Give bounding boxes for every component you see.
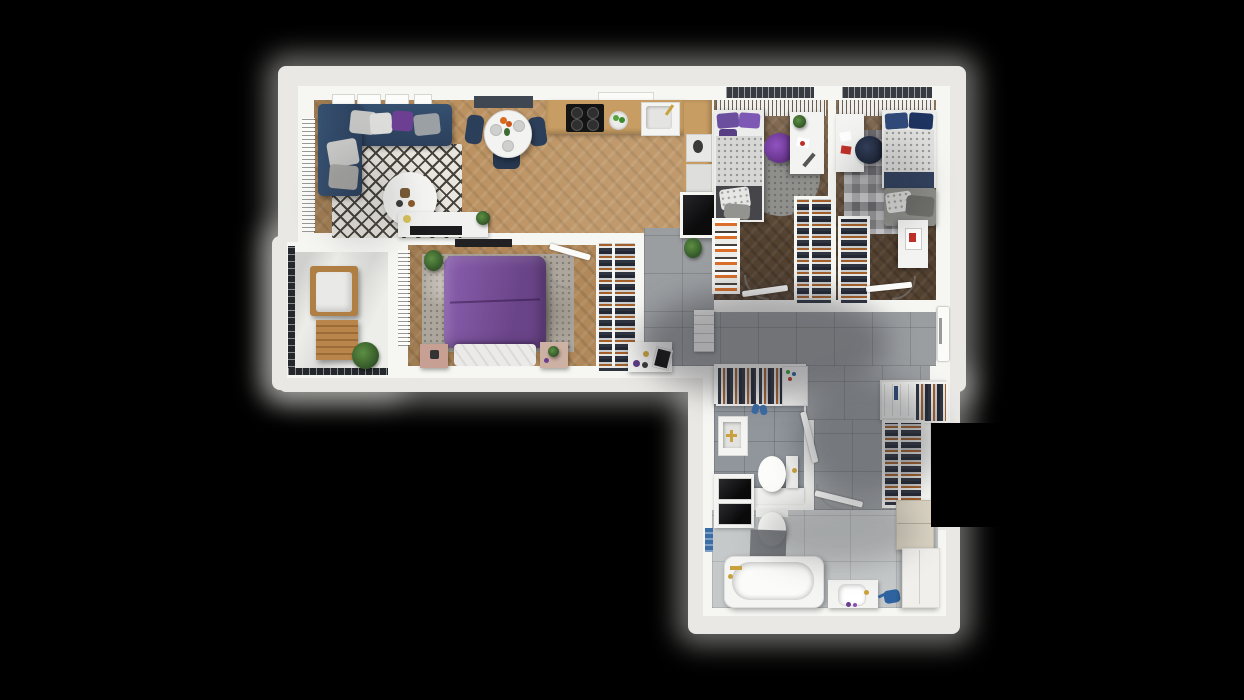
kid2-pouf	[855, 136, 884, 164]
exterior-notch	[931, 423, 1051, 527]
vanity-basin	[838, 584, 866, 606]
closet-shelf-lines	[884, 384, 912, 416]
cabinet-decor	[792, 372, 796, 376]
wc-flush-button	[792, 468, 797, 473]
hall-plant	[684, 238, 702, 258]
kid1-wardrobe	[794, 196, 834, 306]
master-duvet-white	[454, 344, 536, 366]
nightstand-decor	[430, 350, 439, 359]
bathtub-basin	[732, 562, 814, 600]
washer-door	[718, 478, 752, 500]
entry-door-handle	[939, 318, 942, 344]
cabinet-decor	[788, 377, 792, 381]
coat-rack-clothes	[716, 366, 758, 406]
balcony-glass-left	[288, 246, 295, 374]
living-window-blinds	[302, 118, 315, 232]
plate	[502, 140, 514, 152]
coat-rack-clothes	[757, 366, 784, 406]
burner	[587, 119, 599, 131]
kid1-duvet	[716, 136, 762, 188]
wc-slippers	[759, 404, 768, 415]
nightstand-plant	[548, 346, 559, 357]
sideboard-decor	[403, 215, 411, 223]
closet-shelf-item-blue	[894, 386, 898, 400]
bath-towels	[705, 528, 713, 552]
master-wardrobe-divider	[612, 242, 615, 366]
table-plant	[504, 128, 510, 136]
bathtub-faucet	[730, 566, 742, 570]
vanity-faucet	[864, 590, 869, 595]
kid1-pillow-purple	[716, 112, 739, 129]
sideboard-plant	[476, 211, 490, 225]
balcony-plant	[352, 342, 379, 369]
sofa-cushion	[328, 164, 359, 190]
sofa-cushion	[413, 113, 441, 137]
balcony-chair-cushion	[316, 272, 352, 312]
kid2-duvet	[884, 130, 934, 174]
oranges	[506, 121, 512, 127]
fruit	[619, 117, 625, 123]
kid1-window	[726, 87, 814, 98]
master-plant	[424, 250, 443, 271]
closet-divider	[898, 422, 901, 500]
kid1-desk-decor-red	[800, 141, 805, 146]
burner	[571, 119, 583, 131]
kid1-desk-plant	[793, 115, 806, 128]
hall-decor-purple	[633, 360, 640, 367]
plate	[490, 124, 502, 136]
hall-decor-purple	[642, 362, 648, 368]
dryer-door	[718, 503, 752, 525]
burner	[587, 107, 599, 119]
coffee-table-decor	[400, 188, 410, 198]
kid2-wardrobe	[838, 216, 870, 306]
cabinet-decor	[786, 370, 790, 374]
sofa-cushion-purple	[391, 110, 413, 131]
floor-hall-strip	[644, 228, 714, 312]
beige-cabinet-line	[897, 523, 931, 524]
kid2-pillow-navy	[908, 112, 933, 130]
plate	[513, 120, 525, 132]
vanity-soap	[846, 602, 851, 607]
hall-shoe-cabinet	[694, 310, 714, 352]
corridor-closet-rail	[882, 420, 924, 508]
tall-cabinet	[902, 548, 940, 608]
coffee-machine-top	[693, 140, 703, 153]
kid2-desk-art-red	[840, 145, 851, 154]
tv	[410, 226, 462, 235]
kid1-bookshelf	[712, 218, 740, 294]
master-tv	[455, 239, 512, 247]
balcony-glass-bottom	[288, 368, 388, 375]
vanity-soap	[853, 603, 857, 607]
kid2-blanket-navy	[884, 172, 934, 188]
kid2-desk-paper	[839, 131, 851, 142]
coffee-table-decor	[408, 200, 415, 207]
floor-hall-main	[644, 312, 936, 366]
dining-window-dark	[474, 96, 533, 108]
wc-faucet	[726, 434, 737, 437]
kid2-cabinet-art-red	[909, 233, 916, 242]
kid1-wardrobe-divider	[809, 198, 812, 298]
tall-cabinet-line	[919, 550, 920, 604]
sofa-cushion	[369, 112, 392, 134]
beige-cabinet	[896, 500, 934, 550]
hall-decor-gold	[643, 351, 649, 357]
burner	[571, 107, 583, 119]
wc-toilet	[758, 456, 786, 492]
bathtub-handle	[728, 574, 733, 579]
kid2-pillow-blue	[884, 112, 908, 130]
kid2-window	[842, 87, 932, 98]
kid2-bench-pillow	[905, 195, 935, 217]
small-appliance	[686, 164, 712, 192]
master-window-blinds	[398, 250, 410, 346]
coffee-table-decor	[396, 200, 403, 207]
corridor-closet-clothes	[914, 382, 948, 423]
nightstand-decor	[544, 358, 549, 363]
kid1-pillow-purple	[739, 112, 761, 128]
floor-plan-canvas	[0, 0, 1244, 700]
